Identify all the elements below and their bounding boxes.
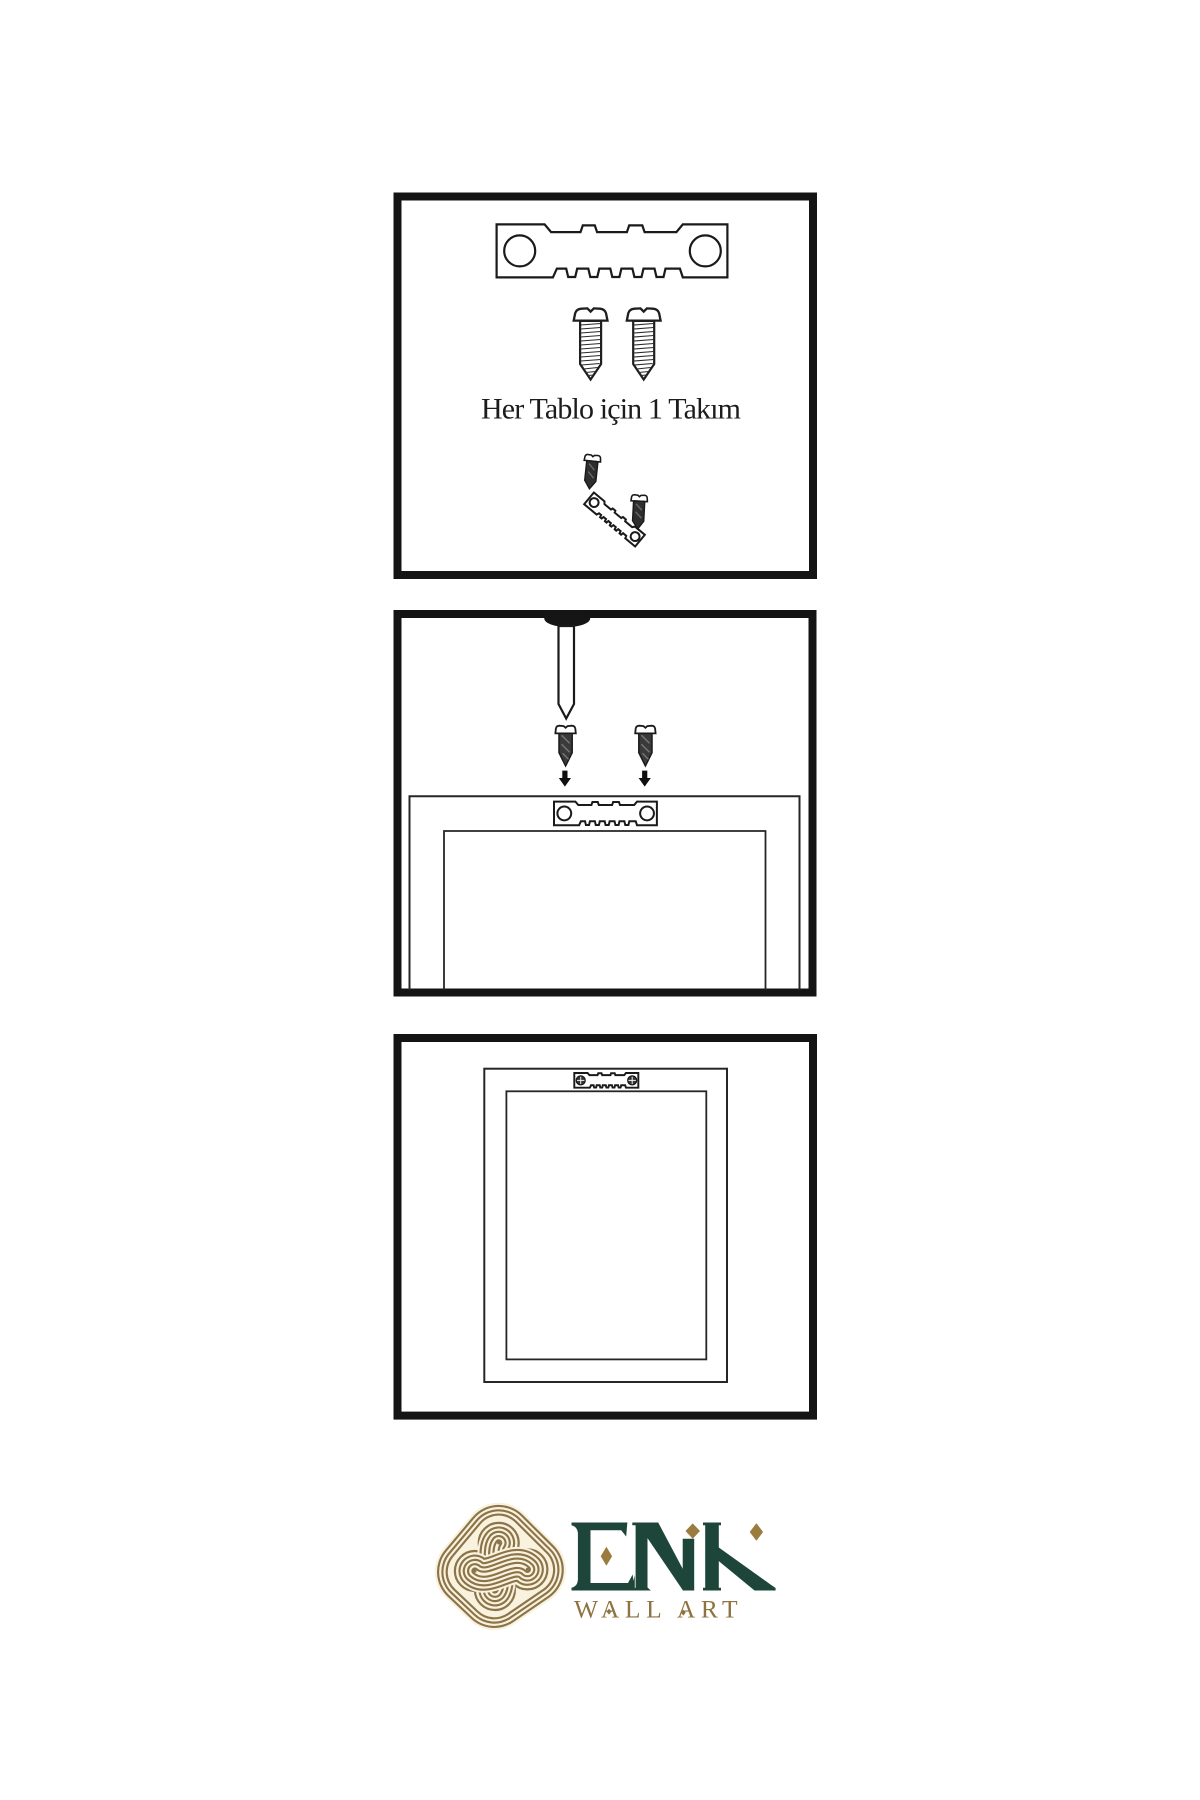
svg-text:Her Tablo için 1 Takım: Her Tablo için 1 Takım	[481, 393, 741, 426]
svg-text:WALL ART: WALL ART	[574, 1594, 743, 1623]
